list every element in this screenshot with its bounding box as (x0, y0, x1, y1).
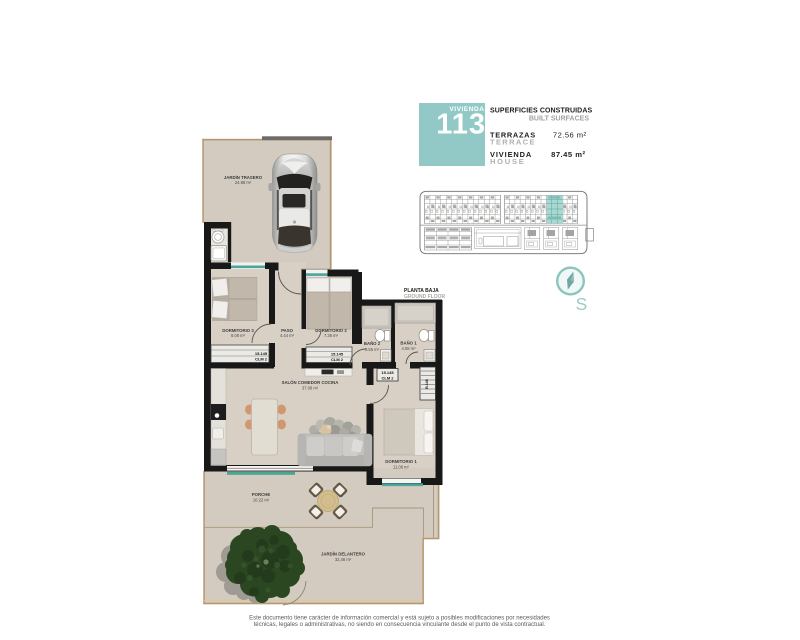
svg-text:PORCHE: PORCHE (252, 492, 271, 497)
svg-text:GROUND FLOOR: GROUND FLOOR (404, 294, 445, 300)
svg-text:72.56 m²: 72.56 m² (553, 131, 587, 140)
svg-text:DORMITORIO 3: DORMITORIO 3 (222, 328, 254, 333)
svg-text:15.145: 15.145 (255, 351, 268, 356)
svg-text:11.06 m²: 11.06 m² (393, 464, 410, 469)
svg-text:CLM 2: CLM 2 (382, 376, 395, 381)
svg-text:15.145: 15.145 (331, 352, 344, 357)
svg-text:PASO: PASO (281, 328, 294, 333)
svg-text:CLM 2: CLM 2 (331, 357, 344, 362)
svg-text:BAÑO 2: BAÑO 2 (364, 341, 381, 346)
svg-text:B.148: B.148 (425, 379, 429, 389)
svg-text:24,88 m²: 24,88 m² (235, 180, 252, 185)
svg-text:técnicas, legales o administra: técnicas, legales o administrativas, no … (254, 622, 546, 628)
svg-text:S: S (576, 294, 588, 314)
svg-text:10.22 m²: 10.22 m² (253, 498, 270, 503)
svg-text:4.44 m²: 4.44 m² (280, 333, 295, 338)
svg-text:37.08 m²: 37.08 m² (302, 386, 319, 391)
svg-text:TERRACE: TERRACE (490, 137, 536, 146)
svg-text:DORMITORIO 2: DORMITORIO 2 (315, 328, 347, 333)
svg-text:DORMITORIO 1: DORMITORIO 1 (385, 459, 417, 464)
svg-text:BAÑO 1: BAÑO 1 (400, 340, 417, 345)
svg-text:7.36 m²: 7.36 m² (324, 333, 339, 338)
svg-text:113: 113 (436, 109, 486, 141)
svg-text:JARDÍN DELANTERO: JARDÍN DELANTERO (321, 551, 366, 556)
svg-text:CLM 2: CLM 2 (255, 357, 268, 362)
svg-text:3.55 m²: 3.55 m² (365, 347, 380, 352)
svg-text:15.145: 15.145 (381, 370, 394, 375)
svg-text:BUILT SURFACES: BUILT SURFACES (529, 115, 589, 122)
svg-text:Este documento tiene carácter: Este documento tiene carácter de informa… (249, 616, 550, 622)
svg-text:SALÓN COMEDOR COCINA: SALÓN COMEDOR COCINA (282, 380, 339, 385)
svg-text:87.45 m²: 87.45 m² (551, 150, 585, 159)
svg-text:SUPERFICIES CONSTRUIDAS: SUPERFICIES CONSTRUIDAS (490, 107, 592, 114)
svg-text:32,46 m²: 32,46 m² (335, 557, 352, 562)
svg-text:HOUSE: HOUSE (490, 157, 526, 166)
svg-text:4.08 m²: 4.08 m² (401, 346, 416, 351)
svg-text:8.08 m²: 8.08 m² (231, 333, 246, 338)
